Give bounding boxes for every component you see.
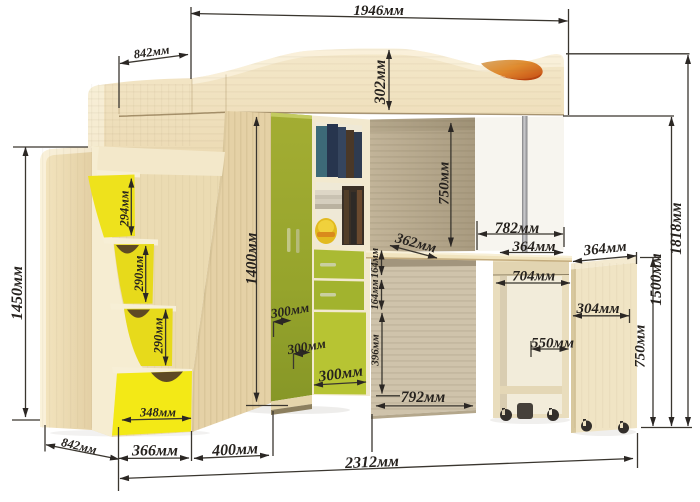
svg-text:400мм: 400мм: [211, 440, 259, 459]
svg-text:704мм: 704мм: [512, 269, 555, 285]
svg-text:1400мм: 1400мм: [244, 232, 261, 285]
svg-text:750мм: 750мм: [437, 162, 453, 205]
svg-text:1500мм: 1500мм: [648, 253, 665, 306]
svg-text:396мм: 396мм: [369, 334, 381, 367]
svg-text:782мм: 782мм: [495, 220, 540, 237]
svg-text:366мм: 366мм: [131, 443, 178, 460]
svg-text:750мм: 750мм: [633, 325, 649, 368]
svg-text:164мм: 164мм: [370, 279, 381, 309]
svg-text:1818мм: 1818мм: [668, 202, 685, 255]
svg-text:1946мм: 1946мм: [353, 3, 404, 19]
svg-text:290мм: 290мм: [152, 317, 166, 354]
svg-text:302мм: 302мм: [372, 59, 389, 105]
svg-text:2312мм: 2312мм: [344, 453, 400, 472]
svg-text:792мм: 792мм: [401, 389, 446, 406]
svg-text:294мм: 294мм: [118, 190, 132, 227]
svg-text:550мм: 550мм: [531, 336, 574, 352]
svg-text:290мм: 290мм: [132, 255, 146, 292]
svg-text:164мм: 164мм: [370, 248, 381, 278]
svg-text:304мм: 304мм: [575, 301, 619, 317]
svg-text:348мм: 348мм: [139, 406, 176, 420]
svg-text:364мм: 364мм: [511, 239, 555, 255]
svg-text:1450мм: 1450мм: [9, 266, 26, 320]
